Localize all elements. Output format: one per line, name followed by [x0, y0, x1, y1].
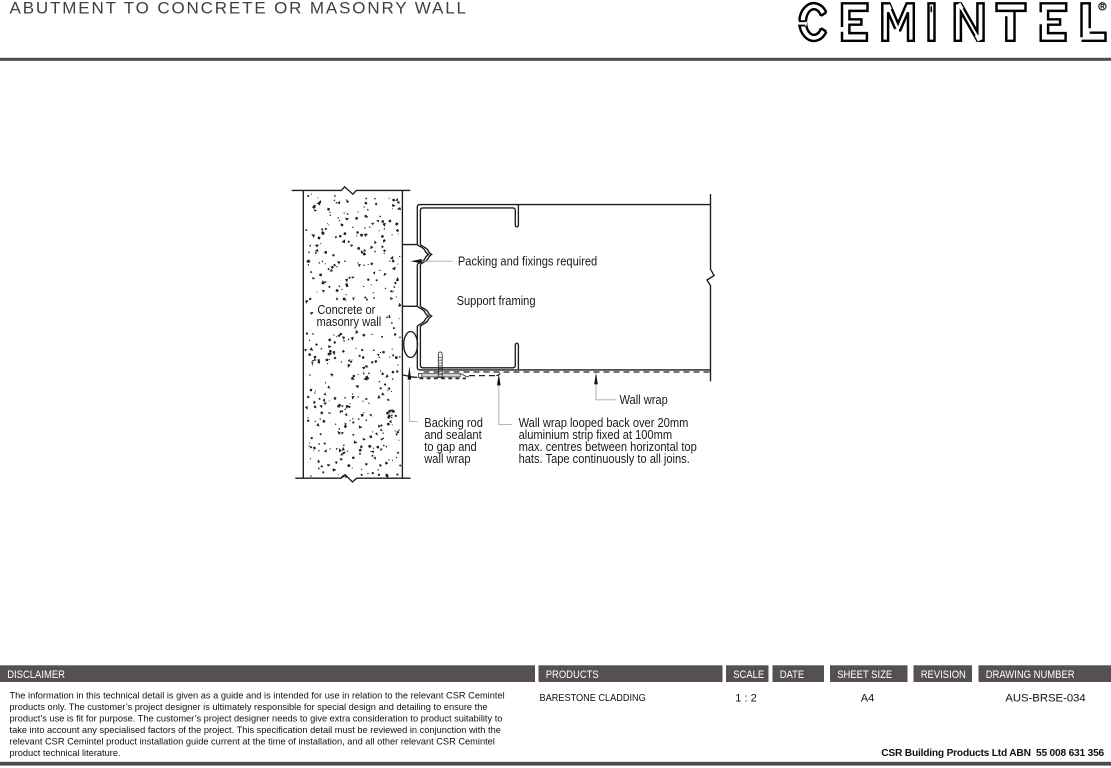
- svg-text:DRAWING NUMBER: DRAWING NUMBER: [986, 669, 1075, 681]
- svg-text:DISCLAIMER: DISCLAIMER: [7, 669, 65, 681]
- svg-text:SCALE: SCALE: [733, 669, 764, 681]
- svg-text:SHEET SIZE: SHEET SIZE: [837, 669, 892, 681]
- svg-text:wall wrap: wall wrap: [423, 451, 470, 466]
- svg-text:DATE: DATE: [780, 669, 805, 681]
- svg-text:product’s use is fit for purpo: product’s use is fit for purpose. The cu…: [10, 714, 503, 724]
- svg-text:Wall wrap: Wall wrap: [620, 392, 669, 407]
- svg-text:hats. Tape continuously to all: hats. Tape continuously to all joins.: [519, 451, 690, 466]
- svg-text:Support framing: Support framing: [457, 293, 536, 308]
- svg-text:BARESTONE CLADDING: BARESTONE CLADDING: [540, 693, 646, 705]
- svg-text:take into account any speciali: take into account any specialised factor…: [10, 725, 501, 735]
- svg-text:AUS-BRSE-034: AUS-BRSE-034: [1005, 693, 1085, 705]
- svg-text:A4: A4: [861, 693, 874, 705]
- svg-text:PRODUCTS: PRODUCTS: [546, 669, 599, 681]
- svg-text:product technical literature.: product technical literature.: [10, 748, 121, 758]
- svg-text:1 : 2: 1 : 2: [735, 693, 756, 705]
- svg-text:The information in this techni: The information in this technical detail…: [10, 691, 505, 701]
- svg-text:Packing and fixings required: Packing and fixings required: [458, 254, 597, 269]
- svg-text:ABUTMENT TO CONCRETE OR MASONR: ABUTMENT TO CONCRETE OR MASONRY WALL: [10, 0, 468, 17]
- svg-text:masonry wall: masonry wall: [317, 314, 382, 329]
- svg-text:relevant CSR Cemintel product: relevant CSR Cemintel product installati…: [10, 737, 495, 747]
- svg-text:products only. The customer’s: products only. The customer’s project de…: [10, 702, 488, 712]
- svg-text:REVISION: REVISION: [921, 669, 966, 681]
- svg-text:CSR Building Products Ltd ABN: CSR Building Products Ltd ABN 55 008 631…: [881, 748, 1104, 759]
